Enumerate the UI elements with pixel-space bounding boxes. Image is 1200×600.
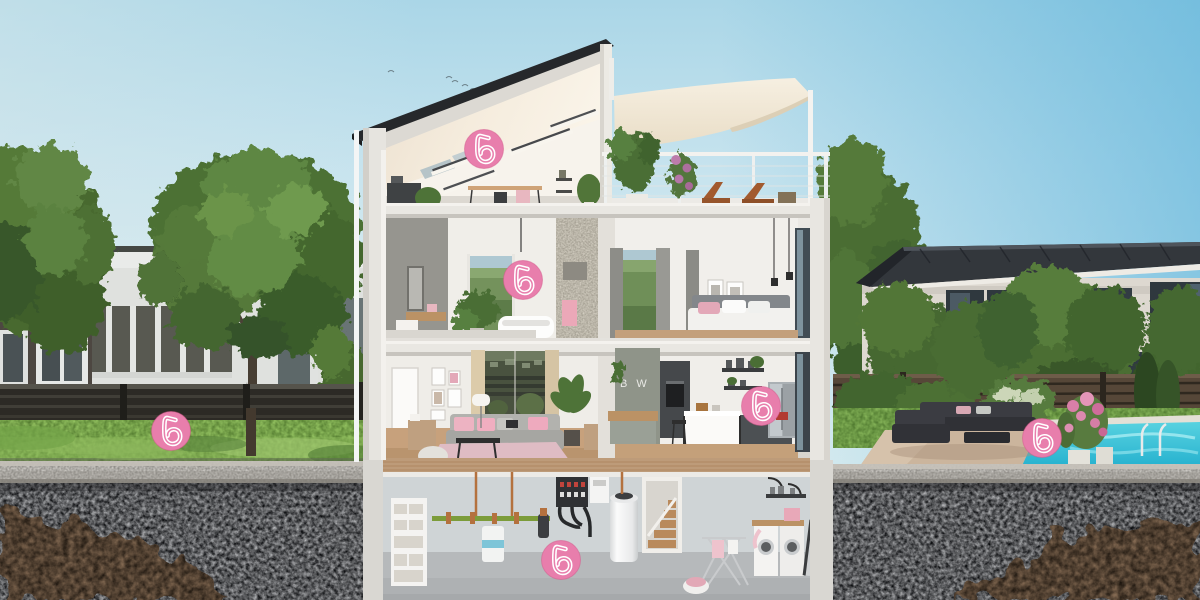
svg-text:B W: B W bbox=[620, 378, 650, 390]
